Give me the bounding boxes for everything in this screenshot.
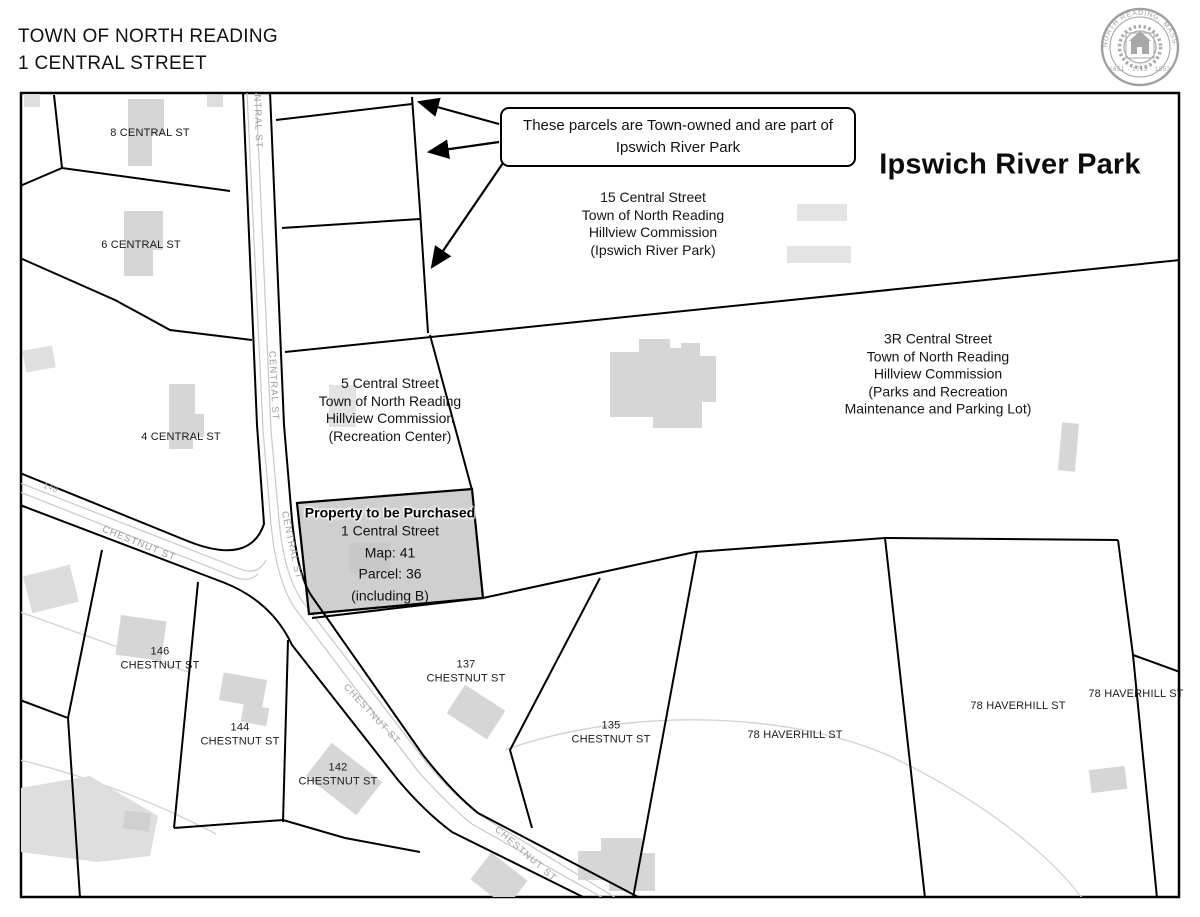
address-label-78-haverhill-west: 78 HAVERHILL ST [747, 728, 842, 742]
parcel-label-3r-central: 3R Central Street Town of North Reading … [845, 330, 1032, 418]
callout-text: These parcels are Town-owned and are par… [523, 115, 833, 160]
park-headline: Ipswich River Park [879, 149, 1141, 182]
callout-box: These parcels are Town-owned and are par… [500, 107, 856, 167]
parcel-map-page: TOWN OF NORTH READING 1 CENTRAL STREET N… [0, 0, 1200, 917]
address-label-146-chestnut: 146 CHESTNUT ST [120, 645, 199, 674]
purchased-property-title: Property to be Purchased [305, 505, 475, 521]
purchased-property-details: 1 Central Street Map: 41 Parcel: 36 (inc… [305, 521, 475, 608]
address-label-142-chestnut: 142 CHESTNUT ST [298, 761, 377, 790]
address-label-78-haverhill-mid: 78 HAVERHILL ST [970, 699, 1065, 713]
parcel-label-15-central: 15 Central Street Town of North Reading … [582, 189, 724, 259]
address-label-135-chestnut: 135 CHESTNUT ST [571, 719, 650, 748]
address-label-137-chestnut: 137 CHESTNUT ST [426, 658, 505, 687]
parcel-label-5-central: 5 Central Street Town of North Reading H… [319, 375, 461, 445]
address-label-4-central: 4 CENTRAL ST [141, 430, 221, 444]
address-label-144-chestnut: 144 CHESTNUT ST [200, 721, 279, 750]
address-label-78-haverhill-east: 78 HAVERHILL ST [1088, 687, 1183, 701]
address-label-8-central: 8 CENTRAL ST [110, 126, 190, 140]
purchased-property-label: Property to be Purchased 1 Central Stree… [305, 505, 475, 608]
address-label-6-central: 6 CENTRAL ST [101, 238, 181, 252]
